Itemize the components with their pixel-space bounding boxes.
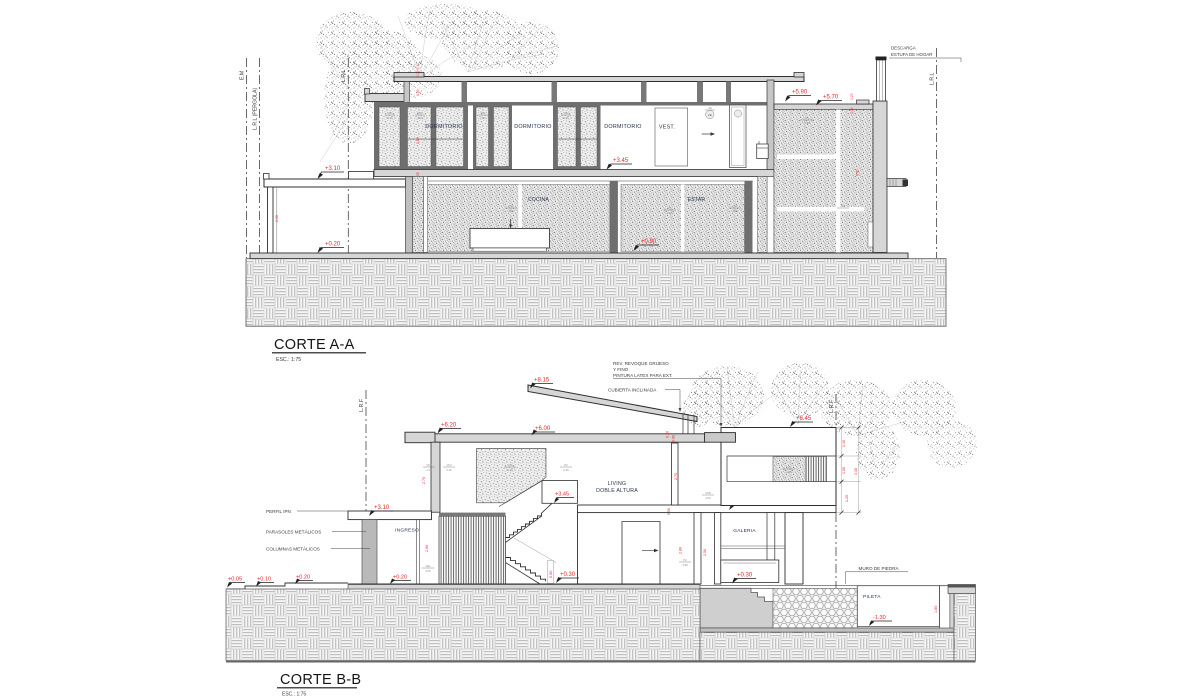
svg-text:2.00: 2.00: [275, 215, 279, 222]
svg-text:CORTE A-A: CORTE A-A: [274, 337, 355, 353]
svg-text:L.R.F: L.R.F: [829, 399, 835, 413]
svg-text:2.70: 2.70: [674, 473, 678, 480]
svg-text:VEST.: VEST.: [659, 125, 675, 131]
svg-text:VD2: VD2: [563, 111, 569, 115]
svg-text:-1.30: -1.30: [873, 615, 886, 621]
svg-text:2.05: 2.05: [508, 209, 514, 213]
svg-text:VE: VE: [708, 106, 712, 110]
svg-text:0.90: 0.90: [549, 571, 553, 578]
svg-text:REV. REVOQUE GRUESO: REV. REVOQUE GRUESO: [613, 361, 669, 366]
svg-text:0.46: 0.46: [563, 468, 569, 472]
svg-text:MURO DE PIEDRA: MURO DE PIEDRA: [859, 566, 900, 571]
svg-text:ESC.: 1:75: ESC.: 1:75: [276, 357, 301, 363]
svg-text:2.05: 2.05: [387, 116, 393, 120]
svg-text:0.90: 0.90: [416, 89, 420, 96]
svg-text:CUBIERTA INCLINADA: CUBIERTA INCLINADA: [608, 388, 657, 393]
svg-text:+6.45: +6.45: [796, 416, 812, 422]
svg-text:V6: V6: [841, 204, 845, 208]
svg-text:2.70: 2.70: [422, 477, 426, 484]
svg-text:V3: V3: [787, 465, 791, 469]
svg-text:5.50: 5.50: [667, 508, 671, 515]
svg-text:L.R.F: L.R.F: [359, 398, 365, 412]
svg-text:VE: VE: [708, 113, 712, 117]
svg-text:2.50: 2.50: [703, 549, 707, 556]
svg-text:VF2: VF2: [427, 463, 432, 467]
svg-text:1.06: 1.06: [786, 470, 792, 474]
svg-text:COLUMNAS METÁLICOS: COLUMNAS METÁLICOS: [266, 546, 320, 552]
svg-text:DORMITORIO: DORMITORIO: [604, 124, 641, 130]
svg-text:+0.30: +0.30: [560, 572, 576, 578]
svg-text:PARASOLES METÁLICOS: PARASOLES METÁLICOS: [266, 529, 321, 535]
svg-text:0.20: 0.20: [666, 431, 670, 438]
svg-text:1.60: 1.60: [934, 606, 938, 613]
svg-text:+0.05: +0.05: [228, 577, 242, 583]
svg-text:+3.10: +3.10: [374, 505, 390, 511]
svg-text:VD1: VD1: [480, 111, 486, 115]
svg-text:4.16: 4.16: [507, 468, 513, 472]
svg-text:+5.90: +5.90: [792, 90, 808, 96]
svg-text:+0.20: +0.20: [393, 575, 407, 581]
svg-text:P4: P4: [509, 204, 513, 208]
svg-text:V5: V5: [805, 116, 809, 120]
svg-text:P5: P5: [668, 206, 672, 210]
svg-text:DOBLE ALTURA: DOBLE ALTURA: [596, 488, 638, 494]
svg-text:5.40: 5.40: [856, 169, 860, 176]
svg-text:+5.70: +5.70: [823, 95, 839, 101]
svg-text:DORMITORIO: DORMITORIO: [514, 124, 551, 130]
svg-text:VFB: VFB: [705, 491, 710, 495]
svg-text:1.20: 1.20: [845, 495, 849, 502]
svg-text:2.05: 2.05: [732, 209, 738, 213]
svg-text:2.05: 2.05: [425, 569, 431, 573]
svg-text:2.05: 2.05: [667, 211, 673, 215]
svg-text:1.00: 1.00: [842, 467, 846, 474]
svg-text:Y FINO: Y FINO: [613, 367, 629, 372]
svg-text:INGRESO: INGRESO: [395, 528, 419, 534]
svg-text:ESTUFA DE HOGAR: ESTUFA DE HOGAR: [891, 52, 932, 57]
svg-text:ESC.: 1:75: ESC.: 1:75: [282, 692, 306, 698]
svg-text:2.05: 2.05: [480, 116, 486, 120]
svg-text:2.05: 2.05: [417, 116, 423, 120]
svg-text:2.96: 2.96: [682, 563, 688, 567]
svg-text:V2: V2: [733, 204, 737, 208]
svg-text:0.90: 0.90: [672, 435, 676, 442]
svg-text:ESTAR: ESTAR: [688, 197, 706, 203]
svg-text:VD1: VD1: [417, 111, 423, 115]
svg-text:2.05: 2.05: [563, 116, 569, 120]
svg-text:2.80: 2.80: [679, 547, 683, 554]
svg-text:4.06: 4.06: [705, 496, 711, 500]
svg-text:2.60: 2.60: [416, 137, 420, 144]
svg-text:E.M: E.M: [240, 71, 246, 80]
svg-text:+6.00: +6.00: [535, 426, 551, 432]
svg-text:+3.45: +3.45: [613, 158, 629, 164]
svg-text:LIVING: LIVING: [608, 481, 627, 487]
svg-text:V1A: V1A: [507, 463, 512, 467]
svg-text:VE1: VE1: [425, 564, 431, 568]
svg-text:+0.30: +0.30: [737, 573, 753, 579]
svg-text:+0.20: +0.20: [325, 242, 341, 248]
svg-text:3.30: 3.30: [854, 468, 858, 475]
svg-text:1.10: 1.10: [842, 440, 846, 447]
svg-text:+3.45: +3.45: [555, 492, 569, 498]
svg-text:0.20 0.10: 0.20 0.10: [416, 63, 420, 77]
svg-text:L.R.L (PERGOLA): L.R.L (PERGOLA): [253, 88, 259, 130]
svg-text:DESCARGA: DESCARGA: [891, 46, 916, 51]
svg-text:0.20: 0.20: [850, 93, 854, 100]
svg-text:GALERIA: GALERIA: [733, 528, 756, 534]
svg-text:CORTE B-B: CORTE B-B: [280, 672, 361, 688]
svg-text:+6.20: +6.20: [441, 423, 457, 429]
svg-text:VD1: VD1: [387, 111, 393, 115]
svg-text:L.R.L: L.R.L: [930, 72, 936, 85]
svg-text:VF2: VF2: [447, 463, 452, 467]
svg-text:PILETA: PILETA: [863, 594, 881, 600]
svg-text:L.R.L: L.R.L: [341, 69, 347, 82]
svg-text:P2: P2: [683, 558, 687, 562]
svg-text:P2: P2: [564, 463, 568, 467]
svg-text:+8.15: +8.15: [534, 378, 550, 384]
svg-text:2.16: 2.16: [446, 468, 452, 472]
svg-text:0.30: 0.30: [850, 107, 854, 114]
svg-text:5.48: 5.48: [804, 121, 810, 125]
svg-text:2.16: 2.16: [426, 468, 432, 472]
svg-text:+3.10: +3.10: [325, 166, 341, 172]
svg-text:2.60: 2.60: [425, 545, 429, 552]
svg-text:PERFIL IPN: PERFIL IPN: [266, 509, 291, 514]
svg-text:PINTURA LATEX PARA EXT.: PINTURA LATEX PARA EXT.: [613, 373, 673, 378]
svg-text:COCINA: COCINA: [528, 197, 549, 203]
svg-text:DORMITORIO: DORMITORIO: [425, 124, 462, 130]
svg-text:+0.90: +0.90: [641, 239, 657, 245]
